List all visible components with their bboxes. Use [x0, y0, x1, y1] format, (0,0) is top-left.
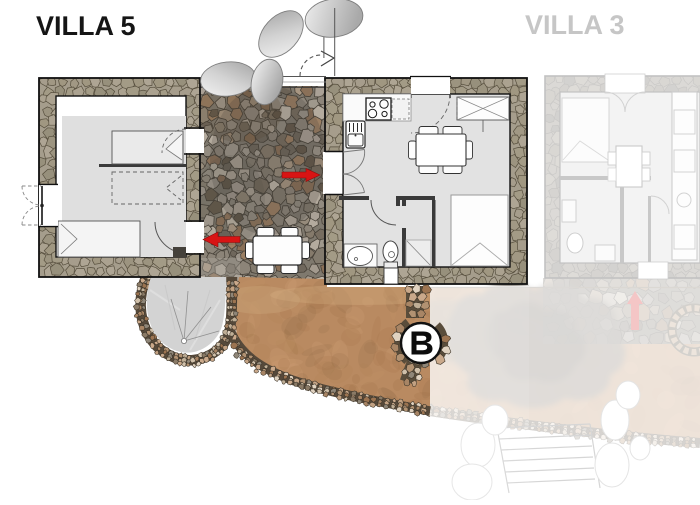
svg-text:VILLA 5: VILLA 5	[36, 11, 136, 41]
svg-text:VILLA 3: VILLA 3	[525, 10, 625, 40]
